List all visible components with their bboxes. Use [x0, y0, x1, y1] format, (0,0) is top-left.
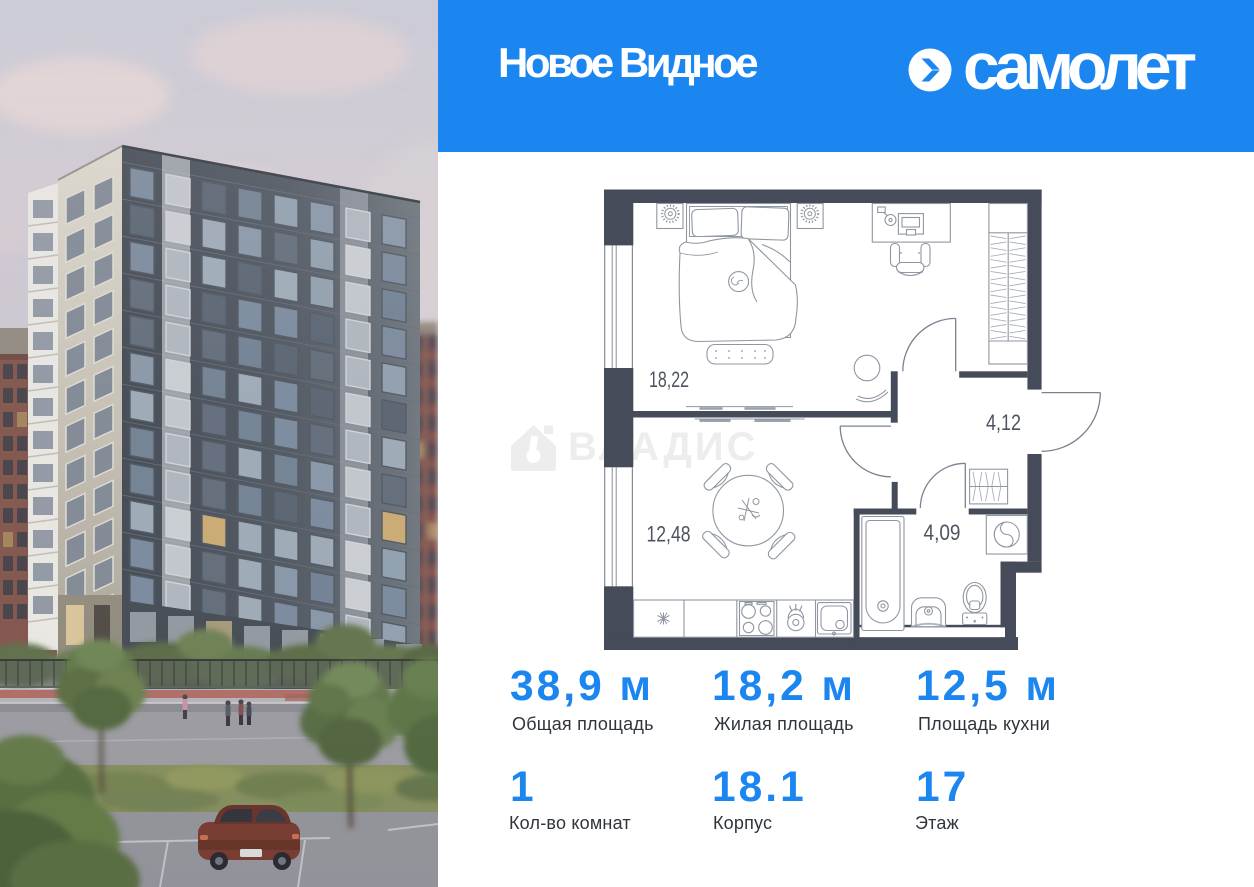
svg-text:4,12: 4,12 [986, 410, 1021, 435]
svg-text:38,9 м: 38,9 м [510, 663, 654, 710]
svg-text:Корпус: Корпус [713, 813, 772, 833]
svg-text:Новое Видное: Новое Видное [498, 39, 757, 86]
svg-text:Площадь кухни: Площадь кухни [918, 714, 1050, 734]
svg-text:Жилая площадь: Жилая площадь [714, 714, 854, 734]
svg-text:самолет: самолет [963, 29, 1196, 103]
svg-text:Общая площадь: Общая площадь [512, 714, 654, 734]
svg-text:4,09: 4,09 [924, 520, 961, 545]
svg-text:18,22: 18,22 [649, 367, 689, 392]
svg-text:1: 1 [510, 764, 537, 811]
svg-text:18.1: 18.1 [712, 764, 807, 811]
svg-text:12,48: 12,48 [647, 522, 691, 547]
svg-text:Кол-во комнат: Кол-во комнат [509, 813, 631, 833]
svg-text:Этаж: Этаж [915, 813, 959, 833]
svg-text:18,2 м: 18,2 м [712, 663, 856, 710]
svg-text:17: 17 [916, 764, 969, 811]
svg-text:ВЛАДИС: ВЛАДИС [568, 425, 758, 469]
svg-text:12,5 м: 12,5 м [916, 663, 1060, 710]
